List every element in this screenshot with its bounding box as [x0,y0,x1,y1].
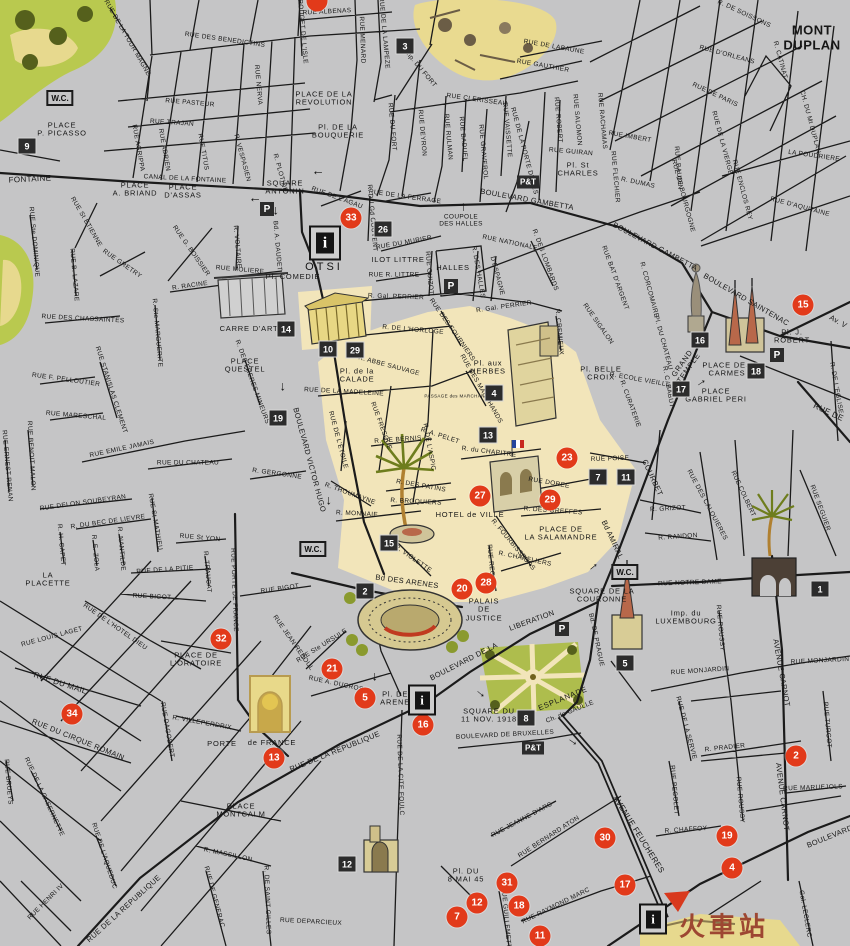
street-label: AVENUE CARNOT [771,638,791,707]
one-way-arrow-icon: → [278,381,293,394]
poi-marker-red-21: 21 [322,659,343,680]
poi-marker-dark-5: 5 [616,655,635,672]
street-label: R. VIOLETTE [393,544,433,575]
poi-marker-dark-9: 9 [18,138,37,155]
poi-marker-red-34: 34 [62,704,83,725]
place-label: ILOT LITTRE [371,256,424,264]
poi-marker-dark-7: 7 [589,469,608,486]
street-label: RUE GUIRAN [549,146,594,157]
street-label: Av. V [828,314,849,331]
street-label: RUE DE LA MADELEINE [304,386,384,397]
street-label: RUE Ste DOMINIQUE [27,207,40,278]
poi-marker-red-2: 2 [786,746,807,767]
poi-marker-dark-3: 3 [396,38,415,55]
street-label: RUE GRAVEROL [477,124,489,180]
one-way-arrow-icon: → [324,495,339,508]
place-label: Pl. COMEDIE [266,273,321,281]
one-way-arrow-icon: → [312,168,325,183]
street-label: RUE POISE [591,455,630,464]
poi-marker-dark-17: 17 [672,381,691,398]
street-label: RUE BADUEL [457,116,468,162]
street-label: CH. DU Mt DUPLAN [798,90,822,155]
street-label: R. CURATERIE [618,379,642,428]
place-label: Pl. J. ROBERT [774,329,810,346]
street-label: RUE Ste URSULE [295,627,348,664]
post-office-badge: P&T [517,176,539,189]
poi-marker-dark-16: 16 [691,332,710,349]
street-label: R. Gal. PERRIER [368,292,424,301]
street-label: RUE G. BOISSIER [171,224,211,277]
parking-badge: P [260,202,274,216]
street-label: RUE FLECHIER [609,151,621,203]
street-label: FONTAINE [8,174,51,185]
street-label: R. MONNAIE [336,509,378,518]
poi-marker-red-18: 18 [509,896,530,917]
street-label: RUE F. PELLOUTIER [31,372,100,389]
place-label: SQUARE DU 11 NOV. 1918 [461,708,517,725]
street-label: RUE HENRI IV [26,882,65,921]
place-label: Pl. DU 8 MAI 45 [448,868,484,885]
street-label: RUE DE L'AQUEDUC [90,822,118,890]
street-label: R. RACINE [172,280,209,292]
wc-badge: W.C. [611,564,638,580]
street-label: RUE NERVA [253,65,264,106]
street-label: RUE RACHAMAS [596,93,608,150]
place-label: PLACE DE L'ORATOIRE [170,652,222,669]
street-label: RUE DE LA TOUR MAGNE [102,0,152,77]
place-label: de FRANCE [248,739,296,747]
parking-badge: P [444,279,458,293]
street-label: R. DE L'HORLOGE [382,324,444,337]
street-label: RUE DES CALQUIERES [685,468,728,541]
street-label: R. TRAUCAT [202,551,213,593]
street-label: RUE PECOLET [668,765,680,815]
street-label: RUE NOTRE DAME [658,578,722,587]
street-label: Bd. DE PRAGUE [587,613,605,668]
place-label: PLACE A. BRIAND [113,182,158,199]
street-label: RUE DE LABAUNE [523,38,585,56]
poi-marker-dark-26: 26 [374,221,393,238]
street-label: R. VILLEPERDRIX [172,714,233,732]
poi-marker-red-17: 17 [615,875,636,896]
poi-marker-dark-1: 1 [811,581,830,598]
street-label: PASSAGE des MARCHANDS [424,393,491,398]
place-label: Pl. DE LA BOUQUERIE [312,124,364,141]
street-label: RUE DE LA LAMPEZE [377,0,391,69]
place-label: Pl. St CHARLES [557,162,598,179]
street-label: BOULEVARD [806,824,850,850]
poi-marker-red-19: 19 [717,826,738,847]
street-label: RUE TRAJAN [150,118,195,128]
street-label: Pl. DU CHATEAU [652,315,674,371]
street-label: RUE MONJARDIN [670,665,729,676]
street-label: R. Ste MARGUERITE [150,298,163,368]
info-i-glyph: i [316,233,334,254]
one-way-arrow-icon: → [472,682,492,702]
poi-marker-red-15: 15 [793,295,814,316]
street-label: RUE ROUSSY [714,605,725,652]
street-label: RUE MARESCHAL [46,410,107,423]
poi-marker-red-32: 32 [211,629,232,650]
street-label: RUE SALOMON [571,94,583,146]
poi-marker-dark-10: 10 [319,341,338,358]
place-label: PLACE MONTCALM [216,803,265,820]
street-label: RUE SIGALON [581,302,615,346]
street-label: RUE DE BOURGOGNE [670,159,696,233]
street-label: RUE CLERISSEAU [446,92,508,108]
street-label: BOULEVARD GAMBETTA [611,221,699,273]
street-label: R. DES FRERES MINEURS [233,339,270,425]
poi-marker-red-30: 30 [595,828,616,849]
poi-marker-dark-13: 13 [479,427,498,444]
street-label: RUE DES BENEDICTINS [184,31,265,49]
street-label: Gal. LECLERC [797,890,812,938]
street-label: RUE MONJARDIN [790,656,849,666]
street-label: BOULEVARD VICTOR HUGO [291,407,327,513]
labels-and-markers-layer: MONT DUPLANOTSIPLACE P. PICASSOPLACE DE … [0,0,850,946]
place-label: PALAIS DE JUSTICE [466,597,503,622]
place-label: PLACE DES CARMES [702,362,751,379]
street-label: D'ESPAGNE [488,256,505,297]
street-label: R. E. ZOLA [90,534,100,571]
street-label: RUE ADRIEN [157,128,172,172]
info-i-glyph: i [646,910,661,928]
poi-marker-red-28: 28 [476,573,497,594]
street-label: RUE DE L'HOTEL DIEU [82,602,149,652]
poi-marker-dark-8: 8 [517,710,536,727]
street-label: R. GERGONNE [252,467,303,481]
street-label: RUE IMBERT [608,130,652,145]
street-label: RUE ERNEST RENAN [0,430,14,502]
one-way-arrow-icon: → [582,555,602,575]
place-label: LA PLACETTE [25,572,70,589]
post-office-badge: P&T [522,742,544,755]
street-label: RUE BIGOT [260,583,300,596]
street-label: RUE DE LA CASERNETTE [22,756,65,837]
street-label: R. NANTILDE [115,527,126,572]
place-label: SQUARE DE LA COURONNE [569,588,634,605]
street-label: RUE BRUEYS [2,759,13,805]
street-label: BOULEVARD DE BRUXELLES [456,729,554,741]
poi-marker-red-23: 23 [557,448,578,469]
street-label: R. VOLTAIRE [231,225,242,269]
street-label: RUE DU FORT [386,103,397,152]
wc-badge: W.C. [46,90,73,106]
poi-marker-dark-11: 11 [617,469,636,486]
street-label: Bd AMIRAL [599,519,624,561]
street-label: RUE GRETRY [101,248,143,280]
street-label: R. CREMIEUX [553,309,564,356]
street-label: RUE DU MAIL [32,671,87,697]
street-label: R. PRADIER [704,742,745,753]
street-label: RUE DES CHASSAINTES [41,313,125,325]
street-label: R. DE SAINT GILLES [262,865,272,934]
street-label: RUE GUILLEMETTE [500,887,513,946]
street-label: RUE St ETIENNE [69,196,104,249]
street-label: RUE TITUS [196,133,210,171]
poi-marker-dark-4: 4 [485,385,504,402]
street-label: R. DES PATINS [395,478,446,494]
street-label: RUE DEYRON [416,109,427,156]
one-way-arrow-icon: → [454,201,469,214]
street-label: RUE DAGOBERT [159,702,176,759]
poi-marker-dark-18: 18 [747,363,766,380]
street-label: AVENUE CARNOT [774,762,791,831]
street-label: RUE PASTEUR [165,97,215,109]
street-label: R. CHAFFOY [664,825,707,835]
street-label: RUE St YON [179,533,220,544]
place-label: Pl. de la CALADE [340,368,375,385]
street-label: RUE DE L'ETOILE [327,410,349,469]
street-label: BOULEVARD DE LA [429,641,499,682]
poi-marker-dark-14: 14 [277,321,296,338]
poi-marker-dark-29: 29 [346,342,365,359]
street-label: R. DE SOISSONS [716,0,772,30]
tourist-info-icon: i [309,226,341,261]
street-label: RUE DEPARCIEUX [280,917,343,928]
street-label: RUE B. LAZARE [68,248,80,302]
street-label: R. DES LOMBARDS [530,228,559,292]
train-station-cn-label: 火車站 [679,907,769,944]
street-label: RUE ENCLOS REY [730,159,753,221]
street-label: RUE DE L'AGAU [310,185,363,210]
poi-marker-dark-15: 15 [380,535,399,552]
tourist-info-icon: i [639,904,667,935]
street-label: RUE DELON SOUBEYRAN [39,493,126,512]
parking-badge: P [555,622,569,636]
place-label: PLACE D'ASSAS [164,184,201,201]
street-label: RUE D'ORLEANS [698,44,755,66]
street-label: RUE JEAN REBOUL [271,614,315,672]
street-label: RUE PORTE DE FRANCE [229,548,239,632]
street-label: RUE AGRIPPA [130,124,145,172]
street-label: BOULEVARD GAMBETTA [480,188,575,213]
poi-marker-red-11: 11 [530,926,551,946]
poi-marker-dark-12: 12 [338,856,357,873]
street-label: RUE LOUIS LAGET [20,625,83,648]
street-label: R. DE L'EGLISE [828,362,844,415]
street-label: RUE DU CIRQUE ROMAIN [30,718,125,763]
street-label: RUE DE LA SERVIE [674,696,698,761]
street-label: RUE ROUSSY [734,777,745,824]
street-label: RUE RAYMOND MARC [521,886,591,925]
street-label: RUE DE LA FERRAGE [368,188,441,205]
street-label: R. DUMAS [620,176,655,190]
street-label: R. du CHAPITRE [461,445,517,459]
street-label: R. DES HALLES [470,245,486,298]
street-label: RUE DE LA CITE FOULC [395,734,405,816]
street-label: RUE BAT D'ARGENT [600,245,630,311]
place-label: CARRE D'ART [220,325,279,333]
street-label: RUE EMILE JAMAIS [89,439,155,460]
street-label: R. DU BEC DE LIEVRE [70,513,146,531]
street-label: R. GRIZOT [650,504,686,513]
street-label: Bd. A. DAUDET [271,221,283,272]
street-label: R. Gal. PERRIER [476,299,533,314]
poi-marker-red-5: 5 [355,688,376,709]
poi-marker-red-33: 33 [341,208,362,229]
street-label: R. MASSILLON [203,846,253,863]
street-label: RUE R. LITTRE [369,271,420,278]
street-label: RUE DE LA PITIE [136,564,194,575]
one-way-arrow-icon: → [564,730,583,750]
street-label: RUE DE GENERAC [202,865,225,928]
street-label: RUE DE LA VIERGE [710,110,734,176]
nimes-city-map: MONT DUPLANOTSIPLACE P. PICASSOPLACE DE … [0,0,850,946]
poi-marker-red-27: 27 [470,486,491,507]
street-label: RUE TURGOT [821,702,832,749]
poi-marker-red-4: 4 [722,858,743,879]
poi-marker-dark-2: 2 [356,583,375,600]
street-label: COUPOLE DES HALLES [439,214,483,229]
street-label: R. RANDON [658,532,698,542]
street-label: RUE JEANNE D'ARC [490,801,554,839]
street-label: RUE DE LA REPUBLIQUE [289,730,382,774]
street-label: RUE DOREE [528,476,570,490]
street-label: RUE NATIONALE [482,234,539,253]
street-label: RUE BENOIT MALON [26,421,37,491]
street-label: RUE MARUEJOLS [783,783,843,792]
street-label: R. BROQUIERS [390,497,442,507]
street-label: RUE DU CHATEAU [157,459,219,466]
parking-badge: P [770,348,784,362]
street-label: RUE St-MATHIEU [146,493,163,551]
street-label: RUE ROBERT [552,97,563,143]
street-label: COURBET [640,458,664,497]
street-label: AVENUE FEUCHERES [610,795,665,876]
street-label: Bd DES ARENES [375,573,439,590]
street-label: R. H. CAPET [56,524,67,567]
wc-badge: W.C. [299,541,326,557]
street-label: RUE MENARD [358,16,367,63]
poi-marker-red-20: 20 [452,579,473,600]
tourist-info-icon: i [408,685,436,716]
poi-marker-red-29: 29 [540,490,561,511]
street-label: RUE DE PARIS [691,81,739,109]
place-label: PORTE [207,740,237,748]
place-label: PLACE P. PICASSO [37,122,87,139]
poi-marker-red-13: 13 [264,748,285,769]
street-label: RUE DE LA REPUBLIQUE [85,874,162,945]
street-label: RUE RULMAN [442,114,453,161]
place-label: PLACE GABRIEL PERI [685,388,746,405]
place-label: MONT DUPLAN [783,23,840,52]
one-way-arrow-icon: → [370,671,385,684]
street-label: R. CORCOMAIRE [638,261,660,319]
street-label: LIBERATION [508,609,556,633]
place-label: Imp. du LUXEMBOURG [655,610,716,627]
street-label: RUE SEGUIER [808,484,831,532]
place-label: HALLES [436,264,470,272]
poi-marker-dark-19: 19 [269,410,288,427]
street-label: RUE GAUTHIER [516,58,570,74]
street-label: RUE D'AQUITAINE [769,196,830,219]
poi-marker-red-7: 7 [447,907,468,928]
street-label: RUE GUIZOT [423,251,434,295]
street-label: BOULEVARD SAINTENAC [702,272,791,328]
info-i-glyph: i [415,691,430,709]
street-label: RUE COLBERT [729,470,757,518]
street-label: RUE BIGOT [132,592,171,601]
place-label: PLACE DE LA SALAMANDRE [525,526,598,543]
place-label: PLACE DE LA REVOLUTION [295,91,352,108]
street-label: R. VESPASIEN [232,133,252,182]
poi-marker-red-31: 31 [497,873,518,894]
poi-marker-red-12: 12 [467,893,488,914]
poi-marker-red-16: 16 [413,715,434,736]
